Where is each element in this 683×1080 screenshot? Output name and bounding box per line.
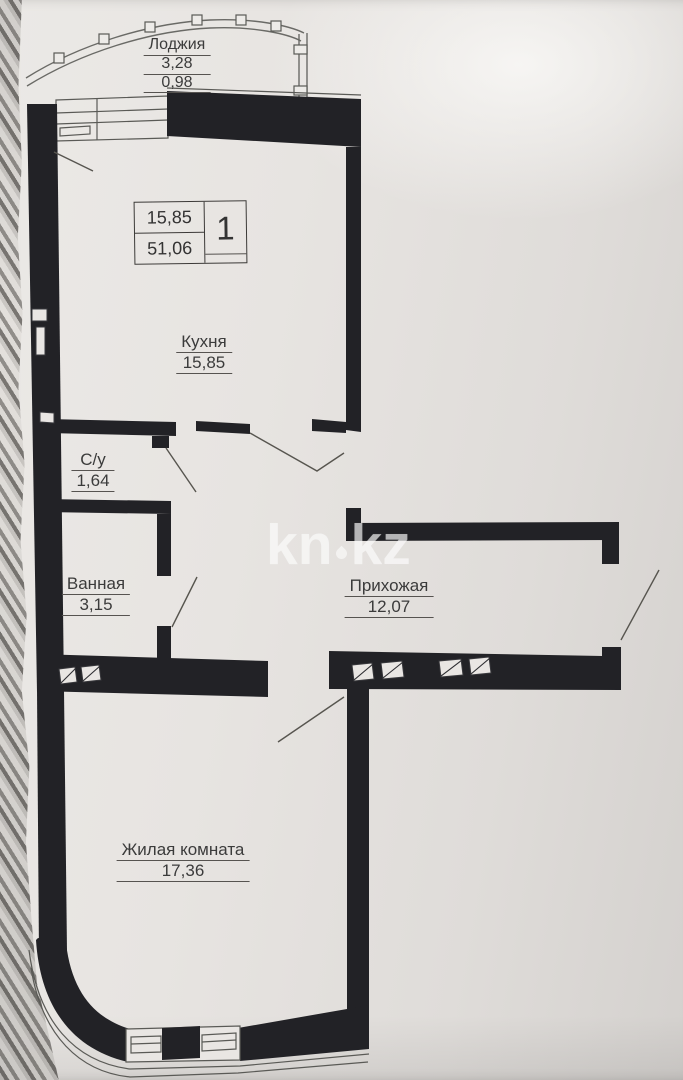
room-area: 17,36 <box>117 861 250 882</box>
watermark-kn: kn <box>266 512 333 578</box>
room-area: 12,07 <box>345 597 434 618</box>
stamp-living-area: 15,85 <box>135 202 204 234</box>
room-area: 1,64 <box>71 471 114 492</box>
room-name: Жилая комната <box>117 840 250 861</box>
room-area: 15,85 <box>176 353 232 374</box>
stamp-total-area: 51,06 <box>135 233 204 264</box>
stamp-rooms-column: 1 <box>205 201 247 263</box>
area-stamp: 15,85 51,06 1 <box>134 200 248 265</box>
room-area: 3,15 <box>62 595 130 616</box>
watermark-kz: kz <box>351 512 411 578</box>
room-name: Прихожая <box>345 576 434 597</box>
room-label-kitchen: Кухня 15,85 <box>176 332 232 374</box>
stamp-room-count: 1 <box>216 209 235 247</box>
room-area: 3,28 <box>144 56 211 75</box>
room-label-wc: С/у 1,64 <box>71 450 114 492</box>
watermark: kn kz <box>266 512 411 578</box>
water-drop-icon <box>333 546 349 562</box>
room-name: Ванная <box>62 574 130 595</box>
floorplan-photo: Лоджия 3,28 0,98 Кухня 15,85 С/у 1,64 Ва… <box>0 0 683 1080</box>
room-label-living-room: Жилая комната 17,36 <box>117 840 250 882</box>
room-label-bathroom: Ванная 3,15 <box>62 574 130 616</box>
wall-vents <box>32 309 491 684</box>
stamp-areas-column: 15,85 51,06 <box>135 202 206 264</box>
room-label-hallway: Прихожая 12,07 <box>345 576 434 618</box>
stamp-divider-line <box>205 253 246 255</box>
room-name: С/у <box>71 450 114 471</box>
room-area-reduced: 0,98 <box>144 75 211 94</box>
room-name: Кухня <box>176 332 232 353</box>
room-label-loggia: Лоджия 3,28 0,98 <box>144 37 211 93</box>
room-name: Лоджия <box>144 37 211 56</box>
